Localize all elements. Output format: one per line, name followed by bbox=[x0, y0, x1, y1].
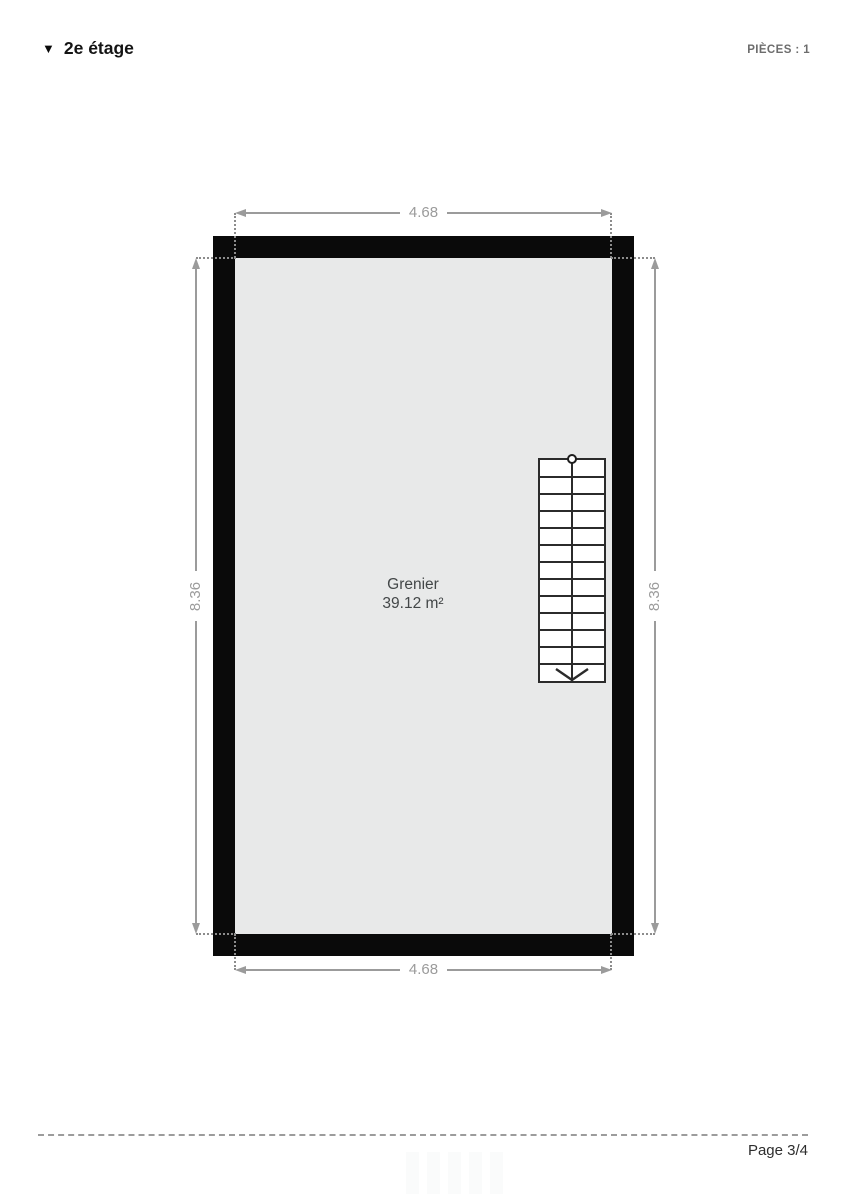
extension-line bbox=[234, 934, 236, 970]
dimension-left: 8.36 bbox=[187, 258, 205, 934]
room-name: Grenier bbox=[382, 575, 443, 594]
room-area: 39.12 m² bbox=[382, 594, 443, 613]
dimension-arrow-icon bbox=[235, 209, 246, 217]
watermark-logo bbox=[406, 1152, 510, 1194]
chevron-down-icon: ▼ bbox=[42, 42, 55, 55]
extension-line bbox=[196, 933, 236, 935]
dimension-right: 8.36 bbox=[646, 258, 664, 934]
extension-line bbox=[610, 213, 612, 258]
dimension-top-value: 4.68 bbox=[400, 204, 447, 222]
stairs-down-arrow-icon bbox=[555, 668, 589, 681]
floor-title: 2e étage bbox=[64, 38, 134, 59]
dimension-arrow-icon bbox=[651, 258, 659, 269]
dimension-bottom-value: 4.68 bbox=[400, 961, 447, 979]
extension-line bbox=[611, 257, 655, 259]
extension-line bbox=[196, 257, 236, 259]
dimension-arrow-icon bbox=[192, 258, 200, 269]
dimension-right-value: 8.36 bbox=[647, 581, 664, 610]
staircase-center-line bbox=[571, 460, 573, 681]
newel-post-icon bbox=[567, 454, 577, 464]
page-number: Page 3/4 bbox=[748, 1142, 808, 1159]
extension-line bbox=[234, 213, 236, 258]
dimension-left-value: 8.36 bbox=[188, 581, 205, 610]
dimension-bottom: 4.68 bbox=[235, 961, 612, 979]
dimension-arrow-icon bbox=[235, 966, 246, 974]
staircase bbox=[538, 458, 606, 683]
dimension-top: 4.68 bbox=[235, 204, 612, 222]
extension-line bbox=[611, 933, 655, 935]
page-separator-line bbox=[38, 1134, 808, 1136]
extension-line bbox=[610, 934, 612, 970]
room-label: Grenier 39.12 m² bbox=[382, 575, 443, 613]
rooms-count-label: PIÈCES : 1 bbox=[747, 44, 810, 56]
floor-selector[interactable]: ▼ 2e étage bbox=[42, 38, 134, 59]
